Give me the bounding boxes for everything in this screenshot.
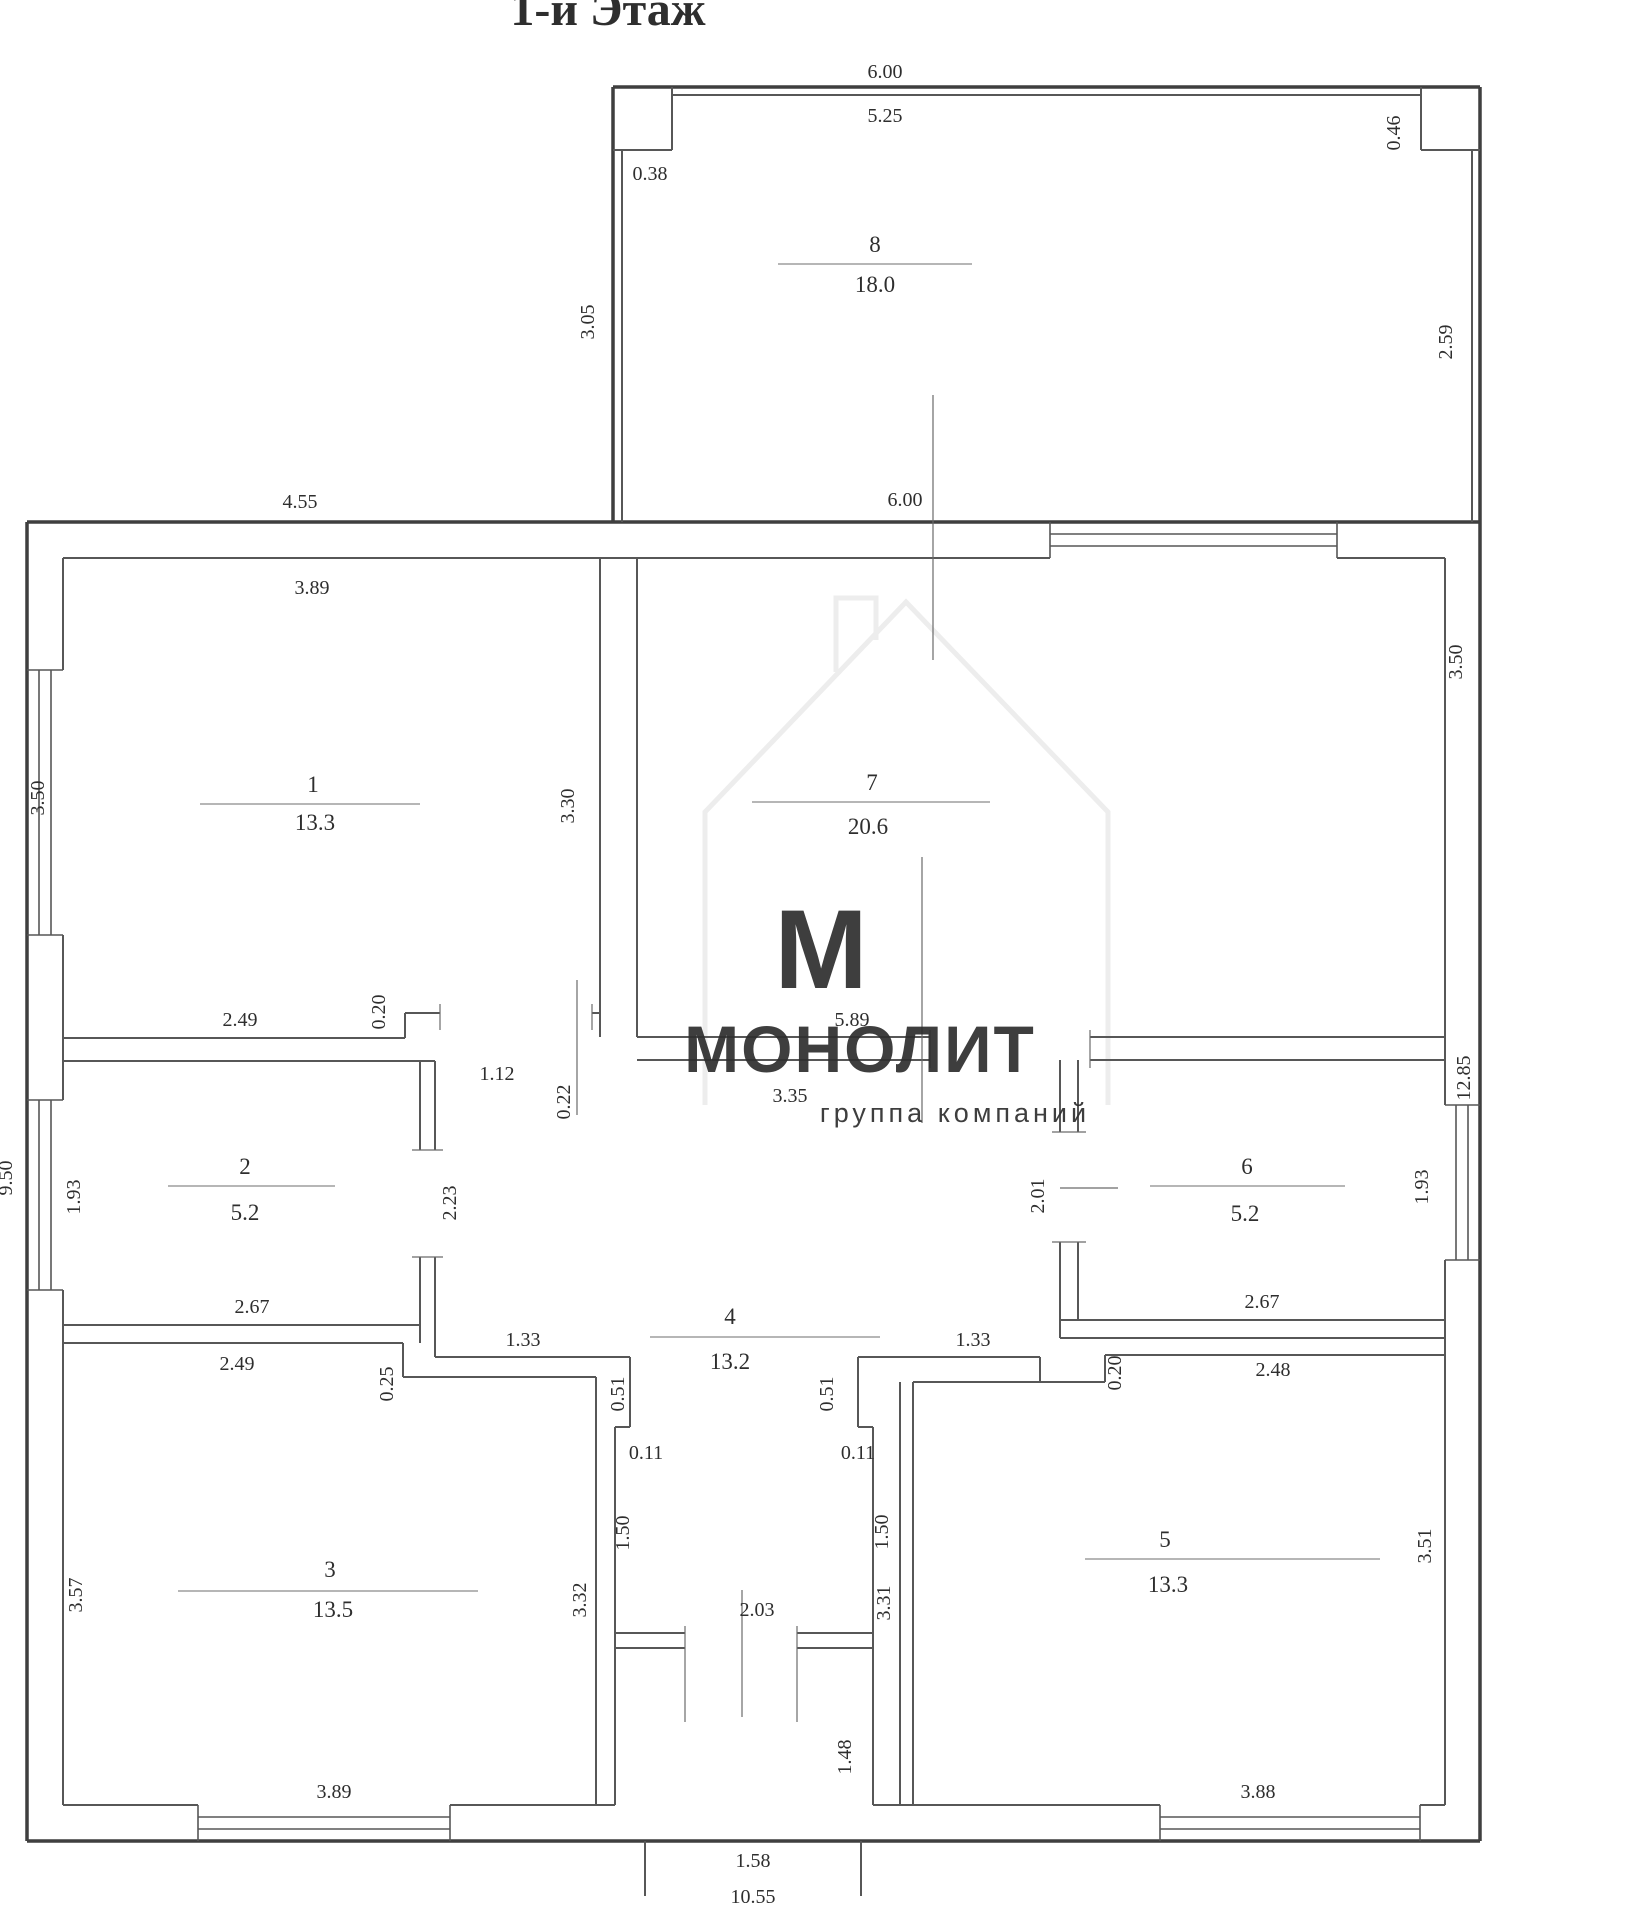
dim-label: 0.20 [1104,1356,1126,1391]
dim-label: 0.22 [553,1085,575,1120]
page-title: 1-й Этаж [510,0,705,36]
dim-label: 3.51 [1414,1529,1436,1564]
dim-label: 5.25 [868,105,903,127]
dim-label: 2.01 [1027,1179,1049,1214]
room-4-area: 13.2 [710,1349,750,1374]
dim-label: 2.59 [1435,325,1457,360]
dim-label: 3.30 [557,789,579,824]
dim-label: 0.51 [607,1377,629,1412]
dim-label: 2.67 [235,1296,270,1318]
room-7-number: 7 [866,770,878,795]
dim-label: 0.20 [368,995,390,1030]
dim-label: 3.50 [27,781,49,816]
dim-label: 9.50 [0,1161,17,1196]
dim-label: 1.33 [506,1329,541,1351]
dimension-labels-rotated: 0.46 3.05 2.59 3.50 3.30 3.50 0.20 0.22 … [0,116,1475,1775]
room-8-area: 18.0 [855,272,895,297]
room-4-number: 4 [724,1304,736,1329]
dim-label: 2.67 [1245,1291,1280,1313]
room-1-area: 13.3 [295,810,335,835]
room-1-number: 1 [307,772,319,797]
room-labels: 1 13.3 2 5.2 3 13.5 4 13.2 5 13.3 6 5.2 … [231,232,1260,1622]
interior-walls [63,87,1480,1896]
dim-label: 3.50 [1445,645,1467,680]
room-3-area: 13.5 [313,1597,353,1622]
dim-label: 1.58 [736,1850,771,1872]
dim-label: 1.50 [871,1515,893,1550]
floor-plan-page: М МОНОЛИТ группа компаний 1 13.3 2 5.2 3… [0,0,1647,1920]
room-8-number: 8 [869,232,881,257]
dim-label: 0.11 [629,1442,663,1464]
dim-label: 3.89 [295,577,330,599]
dim-label: 1.12 [480,1063,515,1085]
window-icons [27,522,1480,1841]
dim-label: 0.51 [816,1377,838,1412]
dim-label: 0.25 [376,1367,398,1402]
dim-label: 3.31 [873,1586,895,1621]
room-6-area: 5.2 [1231,1201,1260,1226]
dimension-labels: 6.00 5.25 0.38 4.55 6.00 3.89 2.49 1.12 … [220,61,1291,1908]
watermark-letter: М [774,887,867,1012]
room-7-area: 20.6 [848,814,888,839]
dim-label: 2.48 [1256,1359,1291,1381]
dim-label: 2.03 [740,1599,775,1621]
dim-label: 0.46 [1383,116,1405,151]
dim-label: 1.50 [612,1516,634,1551]
dim-label: 12.85 [1453,1056,1475,1101]
dim-label: 1.48 [834,1740,856,1775]
dim-label: 2.23 [439,1186,461,1221]
watermark-subtitle: группа компаний [820,1098,1090,1128]
dim-label: 6.00 [888,489,923,511]
dim-label: 10.55 [731,1886,776,1908]
dim-label: 1.93 [1411,1170,1433,1205]
room-5-area: 13.3 [1148,1572,1188,1597]
dim-label: 3.57 [65,1578,87,1613]
dim-label: 4.55 [283,491,318,513]
dim-label: 5.89 [835,1009,870,1031]
dim-label: 2.49 [223,1009,258,1031]
room-6-number: 6 [1241,1154,1253,1179]
dim-label: 3.05 [577,305,599,340]
dim-label: 0.11 [841,1442,875,1464]
dim-label: 3.88 [1241,1781,1276,1803]
dim-label: 3.89 [317,1781,352,1803]
dim-label: 2.49 [220,1353,255,1375]
dim-label: 3.32 [569,1583,591,1618]
room-2-number: 2 [239,1154,251,1179]
dim-label: 1.93 [63,1180,85,1215]
floor-plan-svg: М МОНОЛИТ группа компаний 1 13.3 2 5.2 3… [0,0,1647,1920]
exterior-walls [27,87,1480,1841]
room-5-number: 5 [1159,1527,1171,1552]
dim-label: 6.00 [868,61,903,83]
dim-label: 1.33 [956,1329,991,1351]
room-2-area: 5.2 [231,1200,260,1225]
room-3-number: 3 [324,1557,336,1582]
dim-label: 3.35 [773,1085,808,1107]
dim-label: 0.38 [633,163,668,185]
watermark: М МОНОЛИТ группа компаний [684,887,1090,1128]
